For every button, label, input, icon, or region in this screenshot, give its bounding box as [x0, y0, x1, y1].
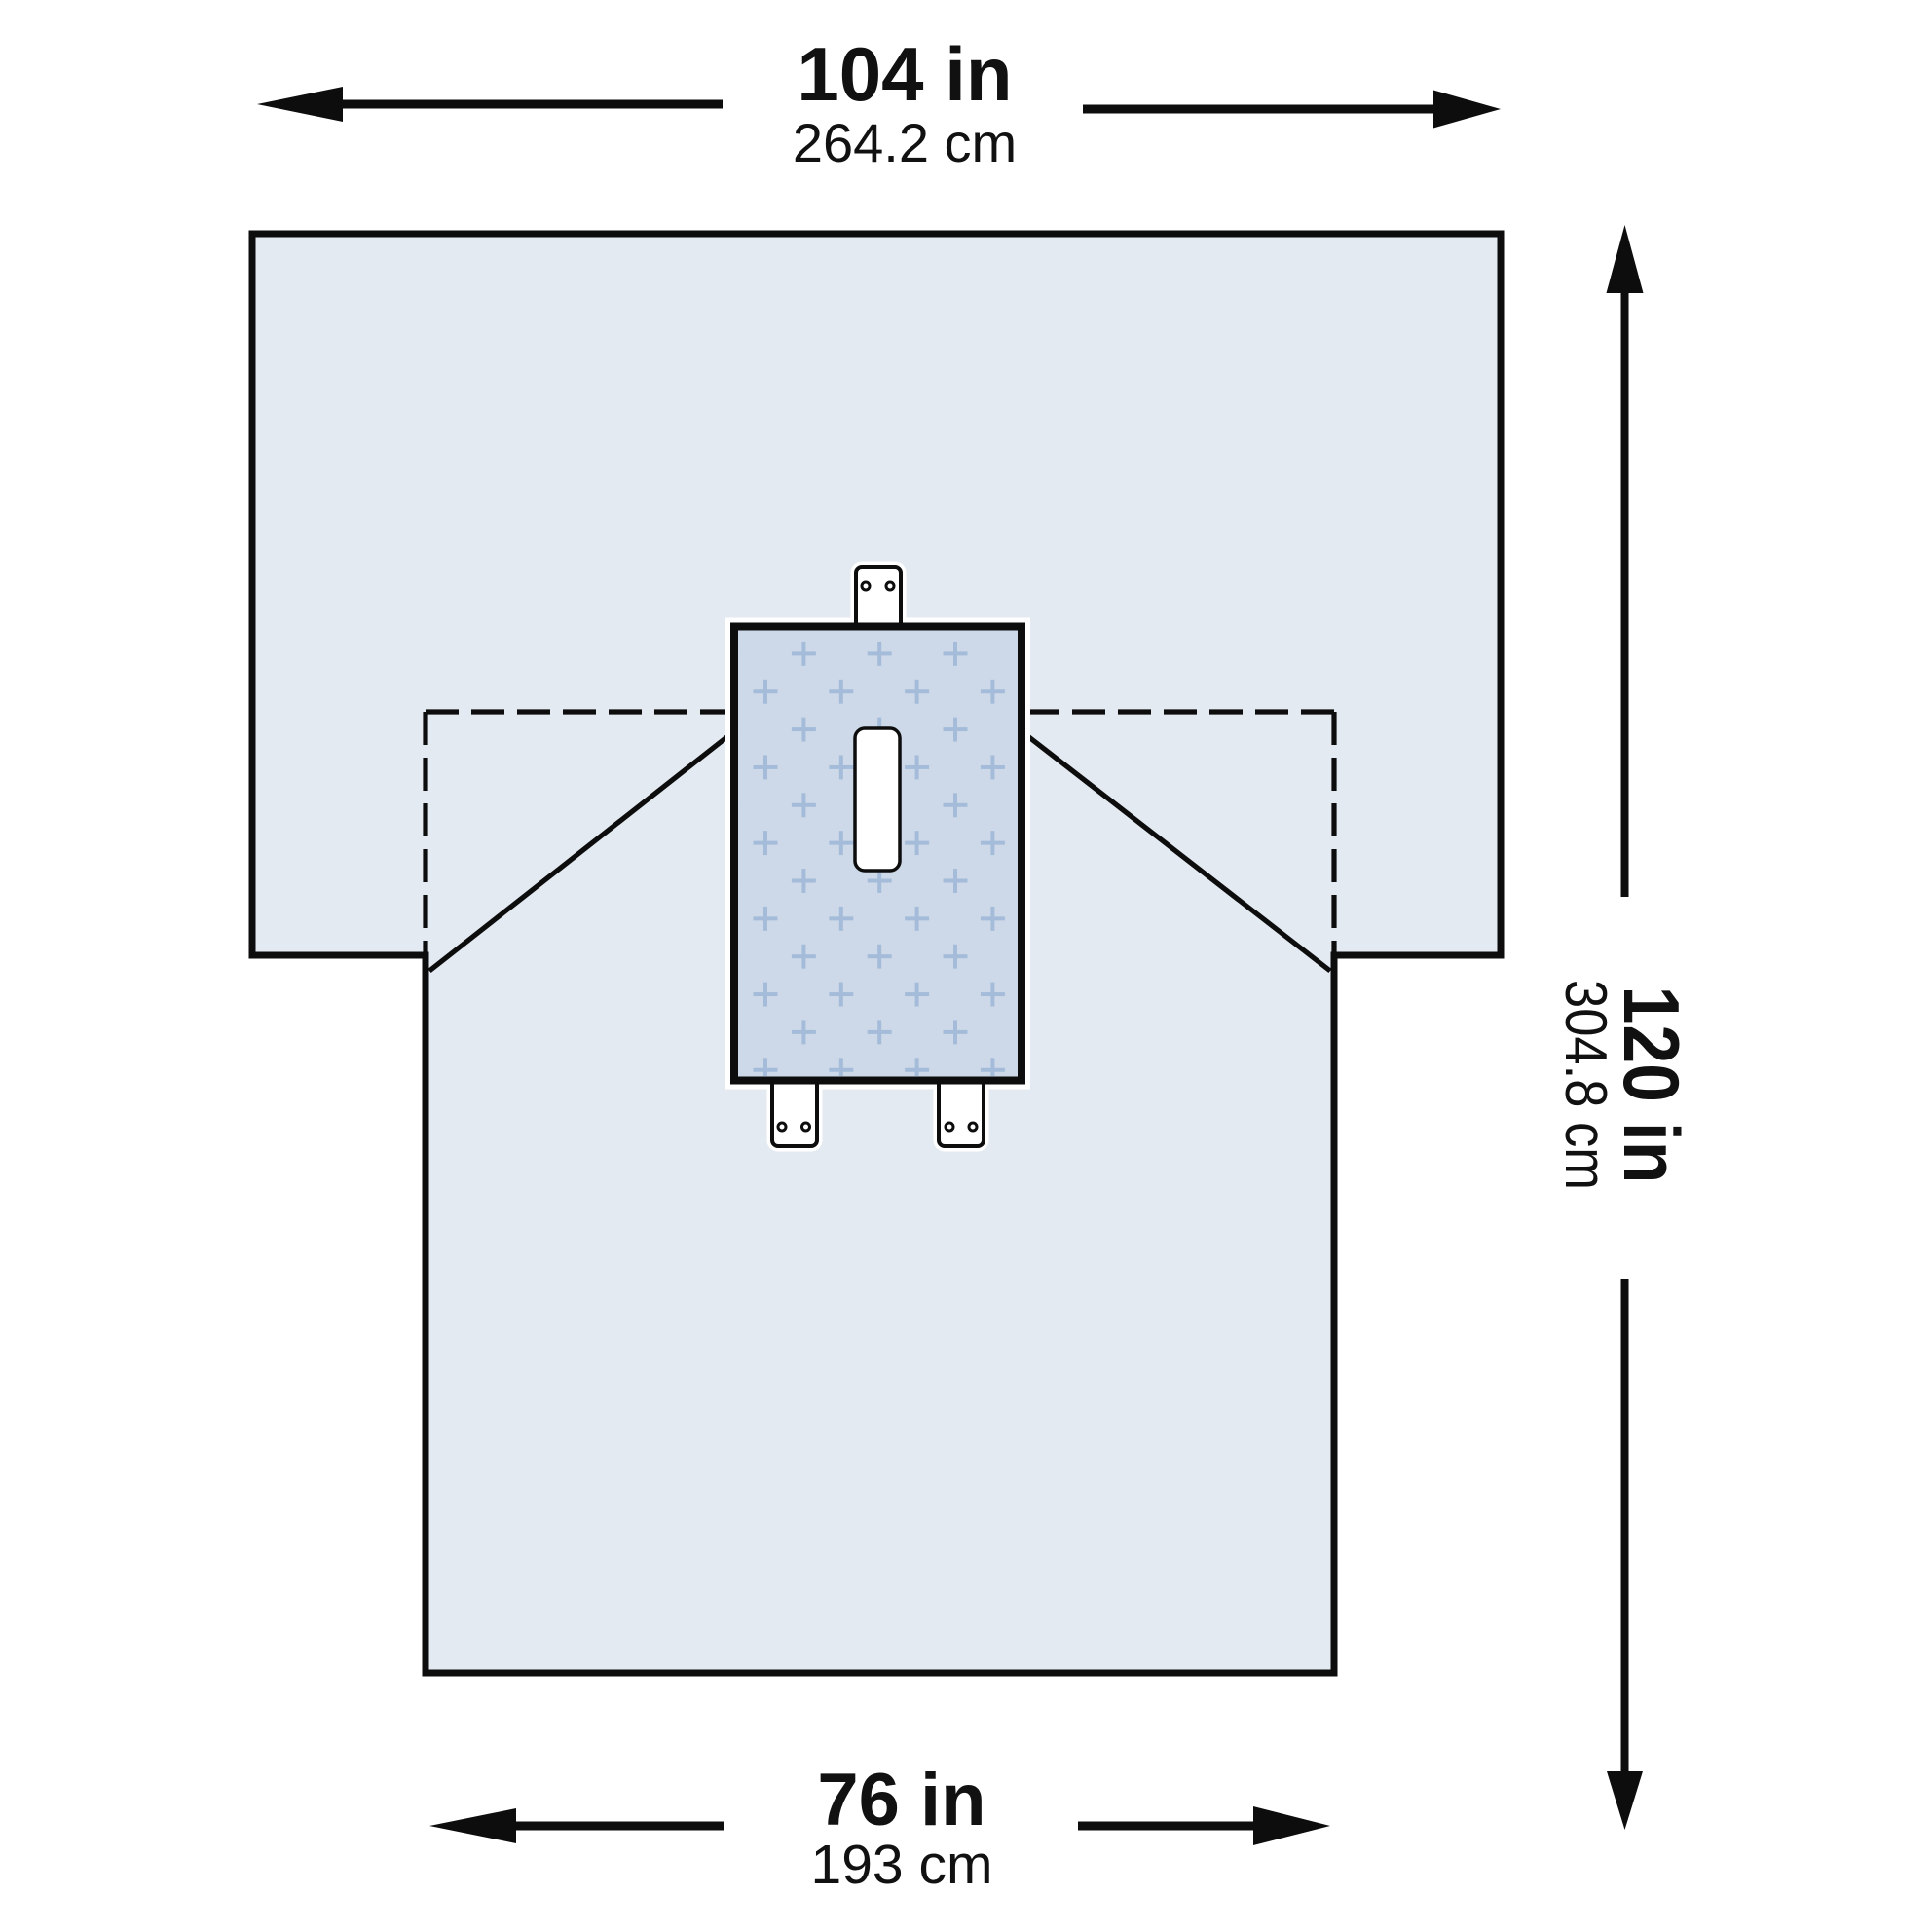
svg-text:193 cm: 193 cm [811, 1834, 993, 1896]
svg-text:264.2 cm: 264.2 cm [793, 112, 1017, 173]
svg-text:120 in: 120 in [1607, 985, 1694, 1183]
svg-text:304.8 cm: 304.8 cm [1552, 980, 1617, 1190]
svg-text:104 in: 104 in [797, 31, 1012, 117]
svg-text:76 in: 76 in [817, 1759, 985, 1841]
